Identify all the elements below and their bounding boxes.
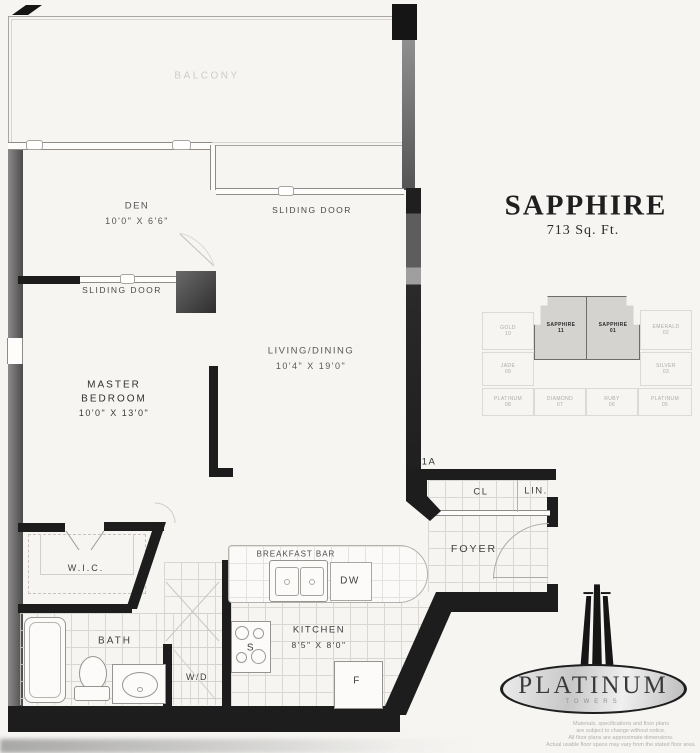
wall-wic-bottom xyxy=(18,604,132,613)
keyplan-unit-num: 03 xyxy=(663,369,669,375)
keyplan-unit-num: 05 xyxy=(662,402,668,408)
foyer-closet-divider xyxy=(517,480,518,512)
unit-number-label: 1A xyxy=(422,457,437,468)
disclaimer-line: Materials, specifications and floor plan… xyxy=(540,721,700,728)
master-door-arc xyxy=(180,233,214,266)
toilet-tank xyxy=(74,686,110,701)
master-window xyxy=(7,338,23,364)
floorplan-sheet: BALCONY SLIDING DOOR DEN 10'0" X 6'6" SL… xyxy=(0,0,700,753)
wall-living-right xyxy=(406,188,421,472)
keyplan-unit-ruby: RUBY 06 xyxy=(586,388,638,416)
logo-name: PLATINUM xyxy=(518,674,668,698)
keyplan-unit-gold: GOLD 10 xyxy=(482,312,534,350)
keyplan-unit-sapphire-01: SAPPHIRE 01 xyxy=(586,296,640,360)
kitchen-dims: 8'5" X 8'0" xyxy=(291,640,346,650)
wall-master-right xyxy=(209,366,218,472)
master-door-swing xyxy=(180,234,214,266)
living-label: LIVING/DINING xyxy=(268,346,355,357)
stove-label: S xyxy=(247,643,255,654)
wall-foyer-right-lower xyxy=(547,584,558,612)
sliding-door-living xyxy=(216,188,404,195)
breakfast-bar-label: BREAKFAST BAR xyxy=(257,550,336,559)
disclaimer-line: All floor plans are approximate dimensio… xyxy=(540,735,700,742)
den-dims: 10'0" X 6'6" xyxy=(105,216,169,226)
bathtub xyxy=(24,617,66,703)
tower-icon xyxy=(566,584,628,668)
den-window-tick-1 xyxy=(26,140,43,150)
sliding-door-master-tick xyxy=(120,274,135,284)
disclaimer: Materials, specifications and floor plan… xyxy=(540,721,700,749)
wall-topleft-stub xyxy=(12,5,42,15)
unit-area: 713 Sq. Ft. xyxy=(547,223,619,239)
keyplan-unit-num: 07 xyxy=(557,402,563,408)
wd-label: W/D xyxy=(186,672,208,682)
bath-sink xyxy=(122,672,158,698)
foyer-closet-front xyxy=(428,510,550,516)
keyplan-unit-num: 08 xyxy=(505,402,511,408)
keyplan-unit-silver: SILVER 03 xyxy=(640,352,692,386)
closet-label: CL xyxy=(473,487,488,498)
bath-sink-drain xyxy=(137,687,143,692)
den-label: DEN xyxy=(125,201,150,212)
logo-ellipse: PLATINUM TOWERS xyxy=(500,664,687,714)
logo-ellipse-inner: PLATINUM TOWERS xyxy=(503,666,684,712)
living-dims: 10'4" X 19'0" xyxy=(276,361,346,371)
keyplan-unit-num: 10 xyxy=(505,331,511,337)
wall-den-corner-block xyxy=(176,271,216,313)
keyplan-unit-sapphire-11: SAPPHIRE 11 xyxy=(534,296,588,360)
wall-top-right-block xyxy=(392,4,417,40)
disclaimer-line: Actual usable floor space may vary from … xyxy=(540,742,700,749)
bath-vanity xyxy=(112,664,166,704)
keyplan-unit-num: 02 xyxy=(663,330,669,336)
wall-foyer-bottom xyxy=(437,592,558,612)
foyer-label: FOYER xyxy=(451,543,497,555)
linen-label: LIN. xyxy=(524,486,547,497)
den-living-divider xyxy=(210,145,216,190)
wall-master-sliding xyxy=(18,276,80,284)
wall-master-right-foot xyxy=(209,468,233,477)
dishwasher-label: DW xyxy=(340,576,360,587)
wall-foyer-top xyxy=(406,469,556,480)
scan-shadow xyxy=(0,739,470,753)
keyplan-unit-num: 01 xyxy=(610,328,616,334)
sliding-door-living-label: SLIDING DOOR xyxy=(272,205,352,215)
sliding-door-living-tick xyxy=(278,186,294,196)
stove-burner-2 xyxy=(253,628,264,639)
kitchen-sink-drain-left xyxy=(284,579,290,585)
keyplan-unit-num: 11 xyxy=(558,328,564,334)
keyplan-unit-diamond: DIAMOND 07 xyxy=(534,388,586,416)
keyplan-unit-num: 09 xyxy=(505,369,511,375)
bedroom-exit-arc xyxy=(155,503,175,523)
bath-label: BATH xyxy=(98,636,132,647)
foyer-door-leaf xyxy=(493,577,548,578)
den-window-tick-2 xyxy=(172,140,191,150)
wic-label: W.I.C. xyxy=(68,563,105,573)
kitchen-sink-drain-right xyxy=(309,579,315,585)
master-label-2: BEDROOM xyxy=(81,394,147,405)
stove-burner-3 xyxy=(236,652,247,663)
fridge-label: F xyxy=(353,676,361,687)
kitchen-sink xyxy=(269,560,328,602)
keyplan-unit-num: 06 xyxy=(609,402,615,408)
kitchen-label: KITCHEN xyxy=(293,625,345,636)
stove-burner-1 xyxy=(235,626,249,640)
keyplan-unit-platinum-05: PLATINUM 05 xyxy=(638,388,692,416)
disclaimer-line: are subject to change without notice. xyxy=(540,728,700,735)
wall-wic-top-right xyxy=(104,522,164,531)
sliding-door-master-label: SLIDING DOOR xyxy=(82,285,162,295)
keyplan-unit-jade: JADE 09 xyxy=(482,352,534,386)
keyplan: GOLD 10 SAPPHIRE 11 SAPPHIRE 01 EMERALD … xyxy=(478,292,692,416)
unit-title: SAPPHIRE xyxy=(505,190,668,223)
bathtub-inner xyxy=(29,622,61,698)
logo-subtitle: TOWERS xyxy=(565,699,621,705)
balcony-label: BALCONY xyxy=(174,71,239,82)
master-label-1: MASTER xyxy=(87,380,141,391)
master-dims: 10'0" X 13'0" xyxy=(79,408,149,418)
keyplan-unit-emerald: EMERALD 02 xyxy=(640,310,692,350)
keyplan-unit-platinum-08: PLATINUM 08 xyxy=(482,388,534,416)
wall-wic-top-left xyxy=(18,523,65,532)
wall-bottom-exterior xyxy=(8,706,400,732)
